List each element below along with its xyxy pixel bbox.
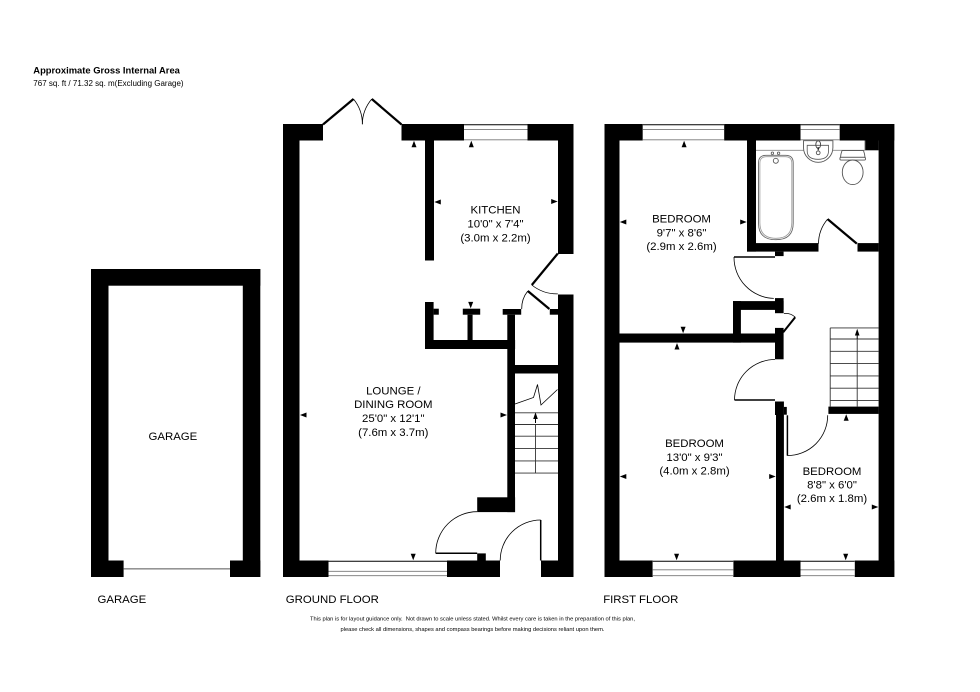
svg-text:This plan is for layout guidan: This plan is for layout guidance only. N… <box>310 616 635 622</box>
svg-text:KITCHEN: KITCHEN <box>471 205 521 217</box>
svg-text:13'0" x 9'3": 13'0" x 9'3" <box>666 452 722 464</box>
svg-text:25'0" x 12'1": 25'0" x 12'1" <box>362 413 424 425</box>
svg-text:BEDROOM: BEDROOM <box>803 466 862 478</box>
svg-text:BEDROOM: BEDROOM <box>652 214 711 226</box>
svg-text:(7.6m x 3.7m): (7.6m x 3.7m) <box>358 427 428 439</box>
svg-text:(2.6m x 1.8m): (2.6m x 1.8m) <box>797 493 867 505</box>
svg-text:10'0" x 7'4": 10'0" x 7'4" <box>467 219 523 231</box>
svg-text:FIRST FLOOR: FIRST FLOOR <box>603 594 678 606</box>
svg-text:9'7" x 8'6": 9'7" x 8'6" <box>657 227 707 239</box>
svg-text:GARAGE: GARAGE <box>149 431 198 443</box>
svg-text:DINING ROOM: DINING ROOM <box>354 399 432 411</box>
svg-text:(2.9m x 2.6m): (2.9m x 2.6m) <box>646 241 716 253</box>
svg-text:GROUND FLOOR: GROUND FLOOR <box>286 594 379 606</box>
svg-text:BEDROOM: BEDROOM <box>665 438 724 450</box>
svg-text:please check all dimensions, s: please check all dimensions, shapes and … <box>340 627 604 633</box>
svg-text:767 sq. ft / 71.32 sq. m(Exclu: 767 sq. ft / 71.32 sq. m(Excluding Garag… <box>33 79 184 88</box>
svg-text:GARAGE: GARAGE <box>98 594 147 606</box>
svg-text:8'8" x 6'0": 8'8" x 6'0" <box>807 480 857 492</box>
svg-text:LOUNGE /: LOUNGE / <box>366 385 421 397</box>
svg-text:Approximate Gross Internal Are: Approximate Gross Internal Area <box>33 65 180 76</box>
svg-text:(4.0m x 2.8m): (4.0m x 2.8m) <box>659 466 729 478</box>
svg-text:(3.0m x 2.2m): (3.0m x 2.2m) <box>460 232 530 244</box>
